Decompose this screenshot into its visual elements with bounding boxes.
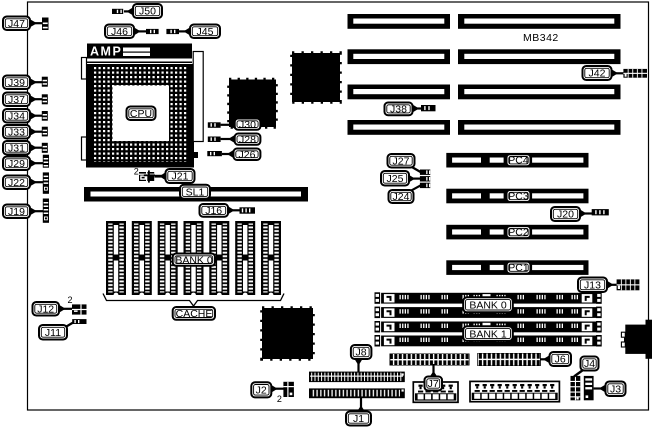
svg-text:J6: J6	[555, 354, 566, 366]
svg-text:J45: J45	[197, 26, 214, 38]
svg-text:J25: J25	[387, 173, 404, 185]
svg-text:CACHE: CACHE	[176, 308, 213, 320]
svg-text:J46: J46	[111, 26, 128, 38]
svg-text:MB342: MB342	[523, 32, 559, 44]
svg-text:J4: J4	[584, 358, 595, 370]
svg-text:PC1: PC1	[508, 262, 529, 274]
svg-text:J3: J3	[610, 383, 621, 395]
svg-text:J7: J7	[428, 378, 439, 390]
svg-text:PC2: PC2	[508, 227, 529, 239]
svg-text:BANK 0: BANK 0	[469, 300, 507, 312]
svg-text:J16: J16	[205, 205, 222, 217]
svg-text:J20: J20	[557, 209, 574, 221]
svg-text:2: 2	[67, 295, 72, 305]
svg-text:J34: J34	[8, 111, 25, 123]
svg-text:J39: J39	[8, 77, 25, 89]
svg-text:J27: J27	[393, 156, 410, 168]
svg-text:J12: J12	[37, 304, 54, 316]
svg-text:2: 2	[277, 394, 282, 404]
svg-text:SL1: SL1	[186, 186, 205, 198]
svg-text:J38: J38	[390, 104, 407, 116]
svg-text:J28: J28	[239, 134, 256, 146]
svg-text:J26: J26	[239, 149, 256, 161]
svg-text:J24: J24	[393, 191, 410, 203]
svg-text:J31: J31	[8, 143, 25, 155]
svg-text:J37: J37	[8, 94, 25, 106]
svg-text:J1: J1	[353, 413, 364, 425]
svg-text:PC4: PC4	[508, 155, 529, 167]
svg-text:J33: J33	[8, 127, 25, 139]
svg-text:BANK 1: BANK 1	[469, 328, 507, 340]
svg-text:PC3: PC3	[508, 191, 529, 203]
svg-text:J19: J19	[8, 206, 25, 218]
svg-text:J47: J47	[8, 18, 25, 30]
svg-text:J29: J29	[8, 158, 25, 170]
svg-text:AMP: AMP	[90, 45, 122, 59]
svg-text:J8: J8	[355, 347, 366, 359]
svg-text:CPU: CPU	[130, 108, 152, 120]
svg-text:J22: J22	[8, 177, 25, 189]
svg-text:J13: J13	[584, 279, 601, 291]
svg-text:J2: J2	[256, 385, 267, 397]
svg-text:J11: J11	[45, 327, 61, 339]
svg-text:2: 2	[134, 166, 139, 176]
svg-text:J21: J21	[172, 171, 189, 183]
svg-text:J50: J50	[139, 6, 156, 18]
svg-text:J42: J42	[589, 68, 606, 80]
svg-text:J30: J30	[239, 119, 256, 131]
svg-text:BANK 0: BANK 0	[175, 254, 213, 266]
